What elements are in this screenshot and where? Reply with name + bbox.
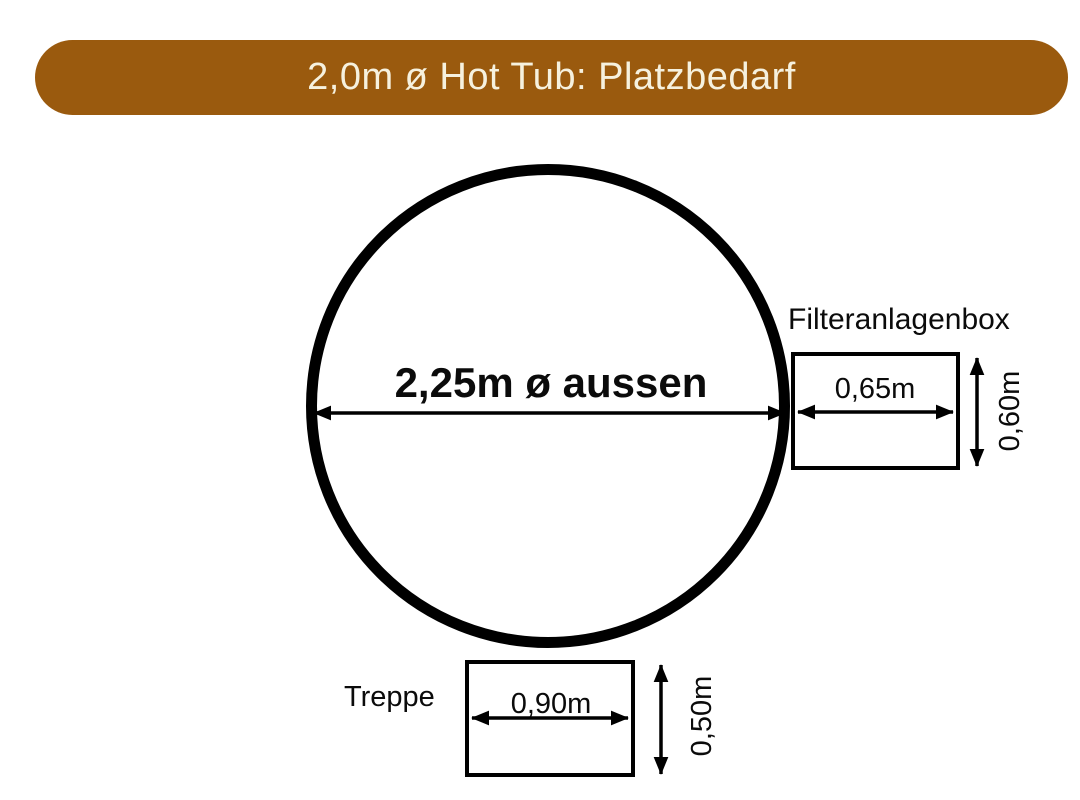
filterbox-width-label: 0,65m — [792, 372, 958, 406]
stairs-label: Treppe — [344, 680, 435, 714]
hot-tub-circle — [312, 170, 785, 643]
stairs-width-label: 0,90m — [469, 687, 633, 721]
diameter-label: 2,25m ø aussen — [331, 361, 771, 405]
hot-tub-space-diagram: 2,0m ø Hot Tub: Platzbedarf 2,25m ø auss… — [0, 0, 1080, 800]
filterbox-height-label: 0,60m — [993, 349, 1027, 473]
filterbox-label: Filteranlagenbox — [788, 303, 1010, 337]
stairs-height-label: 0,50m — [685, 654, 719, 778]
